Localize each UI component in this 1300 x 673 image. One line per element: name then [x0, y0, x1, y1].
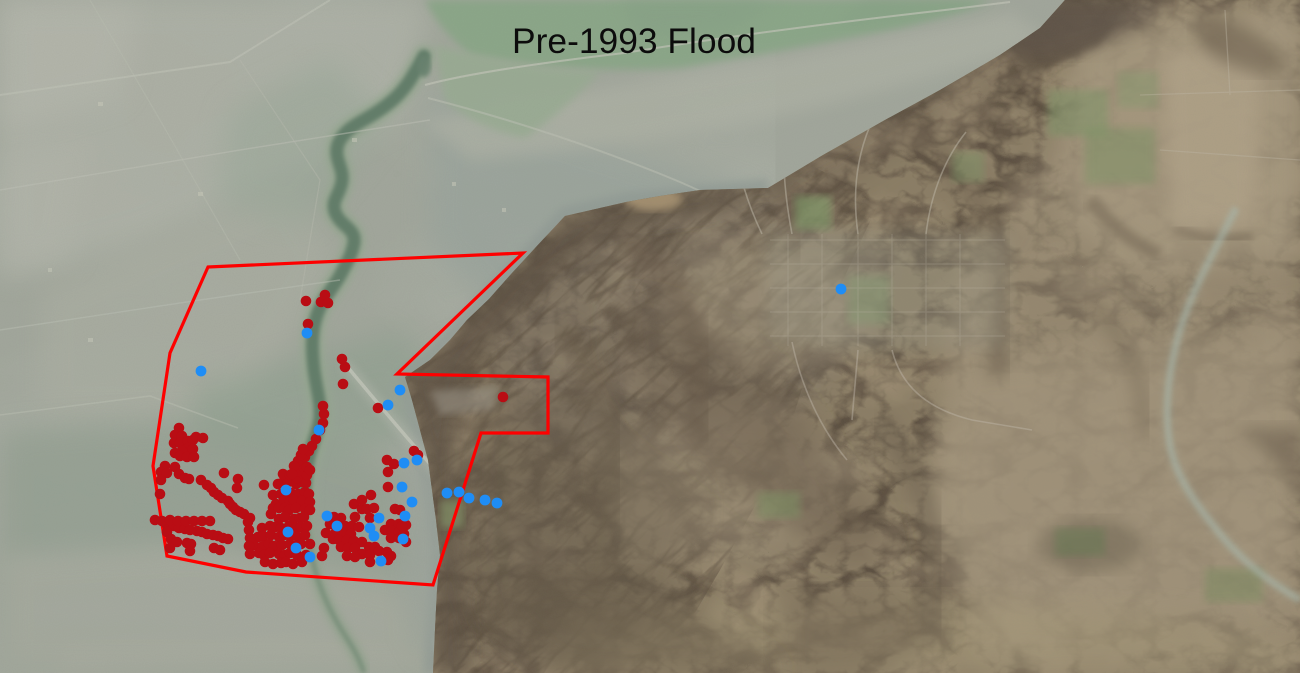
svg-text:Pre-1993 Flood: Pre-1993 Flood: [512, 21, 756, 61]
